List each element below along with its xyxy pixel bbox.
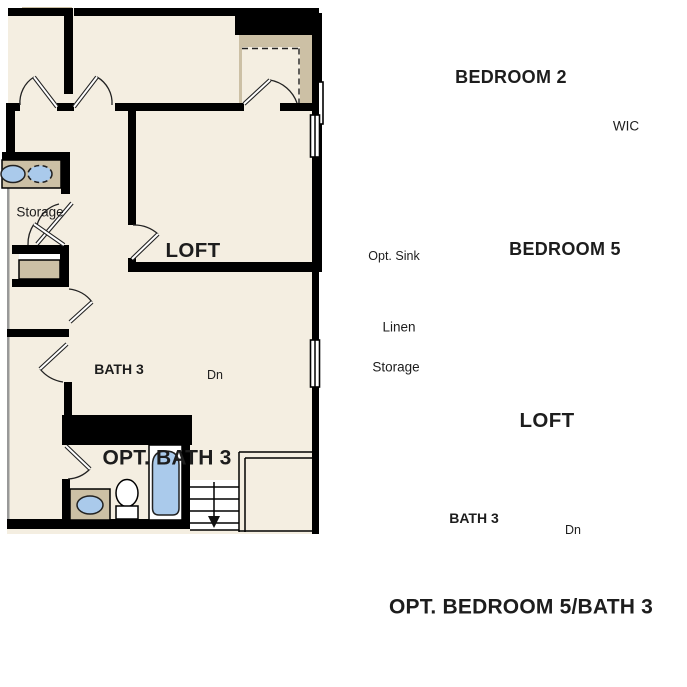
room-label-bedroom5: BEDROOM 5 xyxy=(509,240,621,258)
room-label-loft: LOFT xyxy=(519,411,574,432)
vanity-opt-sink xyxy=(1,160,61,188)
room-label-linen: Linen xyxy=(382,320,415,334)
room-label-bedroom2: BEDROOM 2 xyxy=(455,68,567,86)
cut-edge-line xyxy=(7,188,10,519)
toilet-tank xyxy=(116,506,138,519)
floor-plan-sheet: Storage LOFT BATH 3 Dn OPT. BATH 3 BEDRO… xyxy=(0,0,687,687)
sink-icon xyxy=(1,166,25,183)
toilet-icon xyxy=(116,480,138,507)
room-label-bath3: BATH 3 xyxy=(94,362,144,376)
label-opt-sink: Opt. Sink xyxy=(368,250,419,263)
room-label-storage: Storage xyxy=(16,205,63,219)
room-label-storage: Storage xyxy=(372,360,419,374)
plan-caption-opt-bedroom5-bath3: OPT. BEDROOM 5/BATH 3 xyxy=(389,597,653,618)
sink-icon xyxy=(77,496,103,514)
wic-closet xyxy=(239,34,314,103)
plan-caption-opt-bath-3: OPT. BATH 3 xyxy=(103,448,232,469)
room-label-loft: LOFT xyxy=(165,241,220,262)
room-label-bath3: BATH 3 xyxy=(449,511,499,525)
stairs-label-dn: Dn xyxy=(207,369,223,382)
optional-sink-icon xyxy=(28,166,52,183)
stairs-label-dn: Dn xyxy=(565,524,581,537)
solid-wall-block xyxy=(235,8,319,35)
room-label-wic: WIC xyxy=(613,119,639,133)
linen-closet xyxy=(19,254,60,279)
